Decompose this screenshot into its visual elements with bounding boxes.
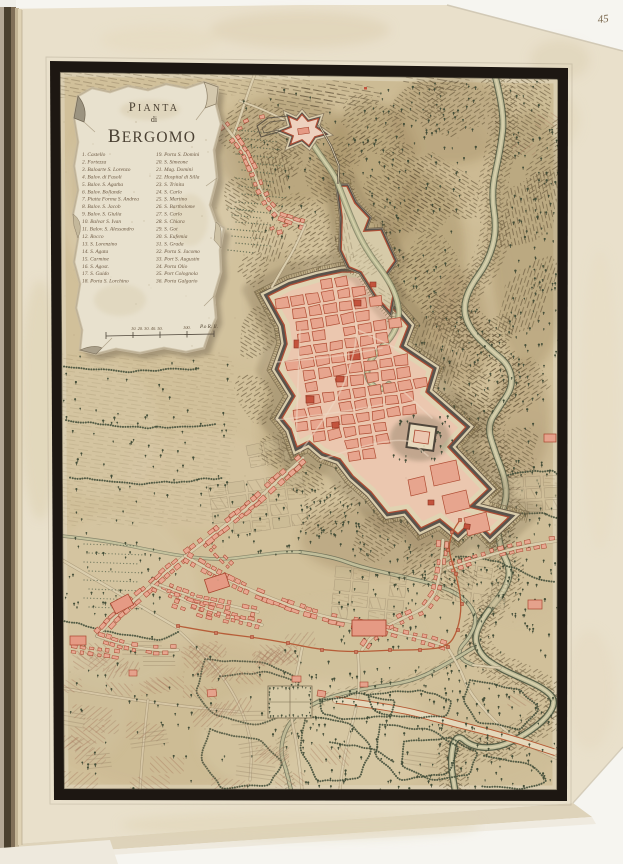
svg-text:45: 45	[597, 13, 610, 26]
